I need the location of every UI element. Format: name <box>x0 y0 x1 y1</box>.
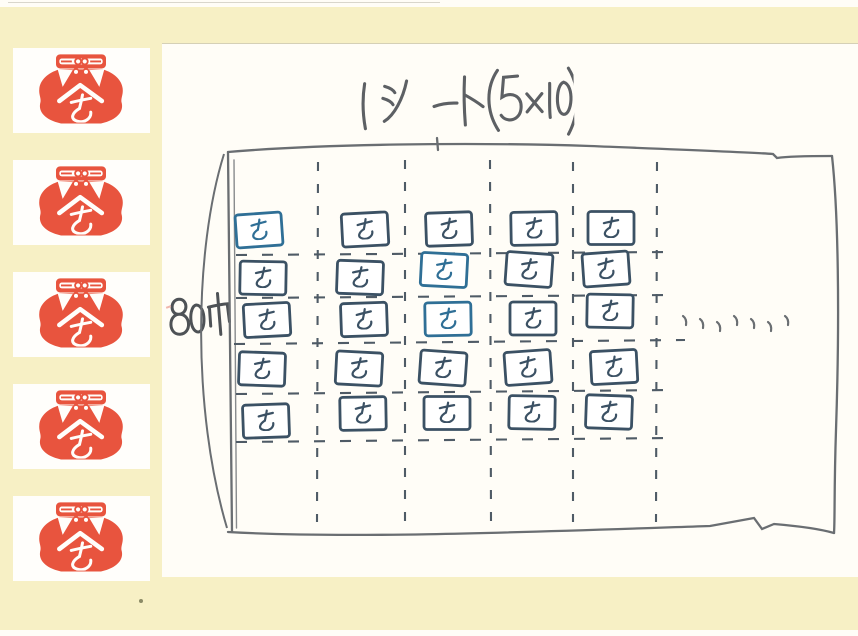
stamp-sticker <box>13 272 150 357</box>
stamp-cell <box>425 302 472 336</box>
stamp-cell <box>424 397 470 430</box>
pot-stamp-icon <box>29 275 133 355</box>
pot-stamp-icon <box>29 51 133 131</box>
stamp-cell <box>510 302 556 335</box>
stamp-cell <box>588 212 634 245</box>
continuation-tick <box>734 316 737 325</box>
sheet-drawing <box>170 130 858 555</box>
stamp-cell <box>235 212 283 248</box>
bottom-yellow-band <box>0 577 858 630</box>
stamp-sticker <box>13 160 150 245</box>
sheet-outline <box>228 138 838 535</box>
scan-edge-line <box>8 2 440 3</box>
band-edge-line <box>162 43 858 44</box>
stamp-sticker <box>13 496 150 581</box>
scanned-sketch-page <box>0 0 858 636</box>
stamp-cell <box>590 349 638 384</box>
stamp-cell <box>238 352 285 387</box>
stamp-cell <box>335 351 383 386</box>
stamp-cell <box>336 260 383 295</box>
continuation-tick <box>717 322 720 331</box>
stamp-cell <box>582 251 630 287</box>
continuation-tick <box>751 319 754 328</box>
stamp-cell <box>240 261 287 295</box>
pot-stamp-icon <box>29 387 133 467</box>
stamp-cell <box>511 212 558 246</box>
top-yellow-band <box>0 7 858 44</box>
continuation-tick <box>683 316 686 325</box>
stamp-cell <box>505 251 553 287</box>
stamp-cell <box>340 302 387 337</box>
stamp-cell <box>340 397 387 431</box>
pot-stamp-icon <box>29 499 133 579</box>
stamp-cell <box>341 212 389 247</box>
stamp-cell <box>585 395 632 430</box>
stamp-cell <box>587 294 634 328</box>
stamp-cell <box>504 349 552 385</box>
continuation-tick <box>768 322 771 331</box>
stamp-cell <box>419 350 467 386</box>
stamp-cell <box>242 404 289 439</box>
stamp-cell <box>420 252 468 287</box>
pot-stamp-icon <box>29 163 133 243</box>
continuation-tick <box>785 316 788 325</box>
stamp-sticker <box>13 48 150 133</box>
stamp-sticker <box>13 384 150 469</box>
stamp-cell-grid <box>235 212 638 439</box>
stamp-cell <box>425 212 472 247</box>
stamp-cell <box>509 396 556 430</box>
page-curl-line <box>201 154 227 528</box>
speck <box>139 599 143 603</box>
continuation-tick <box>700 319 703 328</box>
stamp-cell <box>243 302 291 337</box>
continuation-marks <box>683 316 788 331</box>
